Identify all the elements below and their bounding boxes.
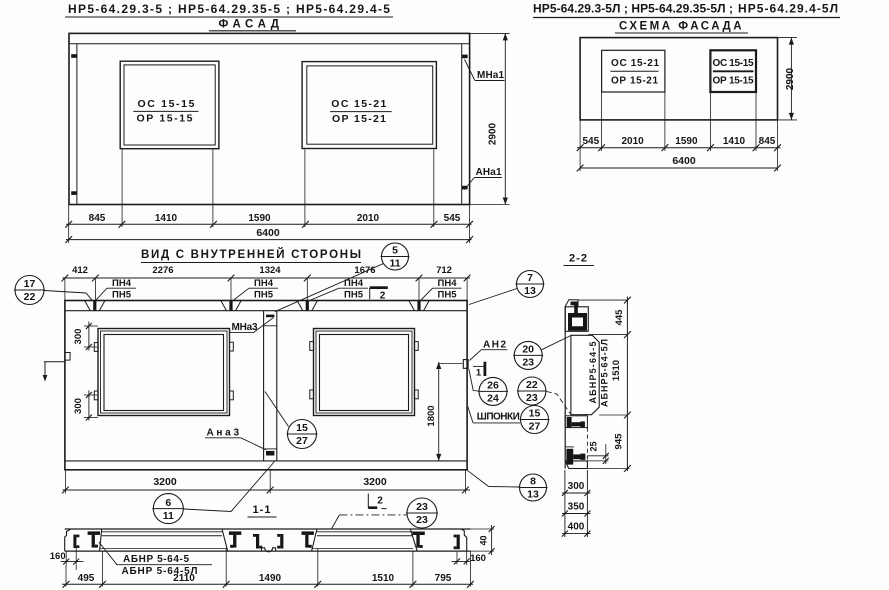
svg-text:300: 300 bbox=[73, 329, 84, 345]
svg-text:26: 26 bbox=[487, 380, 499, 392]
svg-text:МНа1: МНа1 bbox=[477, 70, 504, 81]
svg-text:160: 160 bbox=[50, 551, 66, 562]
svg-text:1410: 1410 bbox=[155, 213, 178, 224]
svg-text:ПН5: ПН5 bbox=[254, 290, 274, 301]
svg-text:ПН5: ПН5 bbox=[112, 290, 132, 301]
svg-text:АБНР5-64-5: АБНР5-64-5 bbox=[588, 342, 598, 404]
svg-text:27: 27 bbox=[296, 435, 308, 447]
svg-text:22: 22 bbox=[24, 291, 36, 303]
svg-text:2276: 2276 bbox=[152, 265, 173, 276]
svg-text:ШПОНКИ: ШПОНКИ bbox=[477, 412, 520, 423]
svg-text:495: 495 bbox=[78, 573, 95, 584]
svg-text:160: 160 bbox=[470, 553, 486, 564]
svg-text:ПН4: ПН4 bbox=[254, 278, 274, 289]
svg-text:АБНР5-64-5Л: АБНР5-64-5Л bbox=[600, 339, 610, 407]
svg-text:1676: 1676 bbox=[354, 265, 375, 276]
svg-text:АН2: АН2 bbox=[483, 340, 506, 351]
svg-text:2900: 2900 bbox=[488, 122, 499, 145]
svg-text:1510: 1510 bbox=[372, 573, 395, 584]
svg-text:3200: 3200 bbox=[153, 476, 177, 488]
svg-text:1490: 1490 bbox=[259, 573, 282, 584]
svg-text:3200: 3200 bbox=[363, 476, 387, 488]
svg-text:545: 545 bbox=[444, 213, 461, 224]
svg-text:НР5-64.29.3-5 ; НР5-64.29.35-: НР5-64.29.3-5 ; НР5-64.29.35-5 ; НР5-64.… bbox=[68, 2, 390, 16]
svg-text:НР5-64.29.3-5Л ; НР5-64.29.35-: НР5-64.29.3-5Л ; НР5-64.29.35-5Л ; bbox=[533, 2, 733, 16]
svg-text:АНа1: АНа1 bbox=[476, 167, 502, 178]
svg-text:ПН5: ПН5 bbox=[438, 290, 458, 301]
svg-text:795: 795 bbox=[435, 573, 452, 584]
svg-text:15: 15 bbox=[296, 422, 308, 434]
svg-text:17: 17 bbox=[24, 278, 36, 290]
svg-text:5: 5 bbox=[392, 245, 398, 257]
svg-text:712: 712 bbox=[436, 265, 452, 276]
svg-text:ПН4: ПН4 bbox=[112, 278, 132, 289]
svg-text:27: 27 bbox=[529, 421, 541, 433]
svg-text:1510: 1510 bbox=[611, 360, 622, 381]
svg-text:845: 845 bbox=[89, 213, 106, 224]
svg-text:2: 2 bbox=[377, 496, 383, 507]
svg-text:ОС 15-15: ОС 15-15 bbox=[713, 58, 754, 69]
svg-text:НР5-64.29.4-5Л: НР5-64.29.4-5Л bbox=[738, 2, 838, 16]
svg-text:445: 445 bbox=[614, 309, 625, 326]
svg-text:23: 23 bbox=[526, 392, 538, 404]
svg-text:412: 412 bbox=[72, 265, 88, 276]
svg-text:400: 400 bbox=[568, 522, 585, 533]
svg-text:1590: 1590 bbox=[248, 213, 271, 224]
svg-text:1800: 1800 bbox=[426, 405, 437, 426]
svg-text:ФАСАД: ФАСАД bbox=[219, 19, 284, 31]
svg-text:1324: 1324 bbox=[259, 265, 281, 276]
svg-text:2: 2 bbox=[380, 291, 386, 302]
svg-text:ПН5: ПН5 bbox=[344, 290, 364, 301]
svg-text:25: 25 bbox=[589, 441, 599, 451]
svg-text:2010: 2010 bbox=[357, 213, 380, 224]
svg-text:1-1: 1-1 bbox=[253, 504, 272, 516]
svg-text:ОС 15-21: ОС 15-21 bbox=[611, 58, 659, 69]
svg-text:МНа3: МНа3 bbox=[232, 322, 258, 333]
svg-text:ПН4: ПН4 bbox=[438, 278, 458, 289]
svg-text:Ана3: Ана3 bbox=[207, 428, 241, 439]
svg-text:1410: 1410 bbox=[723, 136, 746, 147]
svg-text:545: 545 bbox=[582, 136, 599, 147]
svg-text:11: 11 bbox=[163, 510, 174, 522]
svg-text:2900: 2900 bbox=[785, 67, 796, 90]
svg-text:6400: 6400 bbox=[672, 155, 696, 167]
svg-text:24: 24 bbox=[487, 393, 499, 405]
svg-text:ПН4: ПН4 bbox=[344, 278, 364, 289]
svg-text:350: 350 bbox=[568, 502, 585, 513]
svg-text:11: 11 bbox=[389, 258, 400, 270]
svg-text:1: 1 bbox=[476, 368, 482, 379]
svg-text:2010: 2010 bbox=[621, 136, 644, 147]
svg-text:АБНР 5-64-5: АБНР 5-64-5 bbox=[123, 554, 189, 565]
svg-text:20: 20 bbox=[522, 344, 534, 356]
svg-text:23: 23 bbox=[416, 501, 428, 513]
svg-text:13: 13 bbox=[527, 489, 539, 501]
svg-text:1590: 1590 bbox=[675, 136, 698, 147]
svg-text:ОР 15-15: ОР 15-15 bbox=[713, 76, 754, 87]
svg-text:6: 6 bbox=[165, 497, 171, 509]
svg-text:ОР 15-21: ОР 15-21 bbox=[611, 76, 658, 87]
svg-text:2-2: 2-2 bbox=[569, 253, 588, 265]
svg-text:300: 300 bbox=[73, 398, 84, 414]
svg-text:8: 8 bbox=[530, 476, 536, 488]
svg-text:23: 23 bbox=[522, 357, 534, 369]
svg-text:2110: 2110 bbox=[173, 573, 195, 584]
svg-text:6400: 6400 bbox=[256, 227, 280, 239]
svg-text:7: 7 bbox=[527, 272, 533, 284]
svg-text:ОР 15-21: ОР 15-21 bbox=[332, 113, 386, 125]
svg-text:845: 845 bbox=[759, 136, 776, 147]
svg-text:13: 13 bbox=[524, 285, 536, 297]
svg-text:23: 23 bbox=[416, 514, 428, 526]
svg-text:40: 40 bbox=[479, 535, 489, 545]
svg-text:СХЕМА ФАСАДА: СХЕМА ФАСАДА bbox=[619, 21, 744, 33]
svg-text:300: 300 bbox=[568, 481, 585, 492]
svg-text:15: 15 bbox=[529, 408, 541, 420]
svg-text:22: 22 bbox=[526, 379, 538, 391]
svg-text:945: 945 bbox=[614, 433, 625, 450]
